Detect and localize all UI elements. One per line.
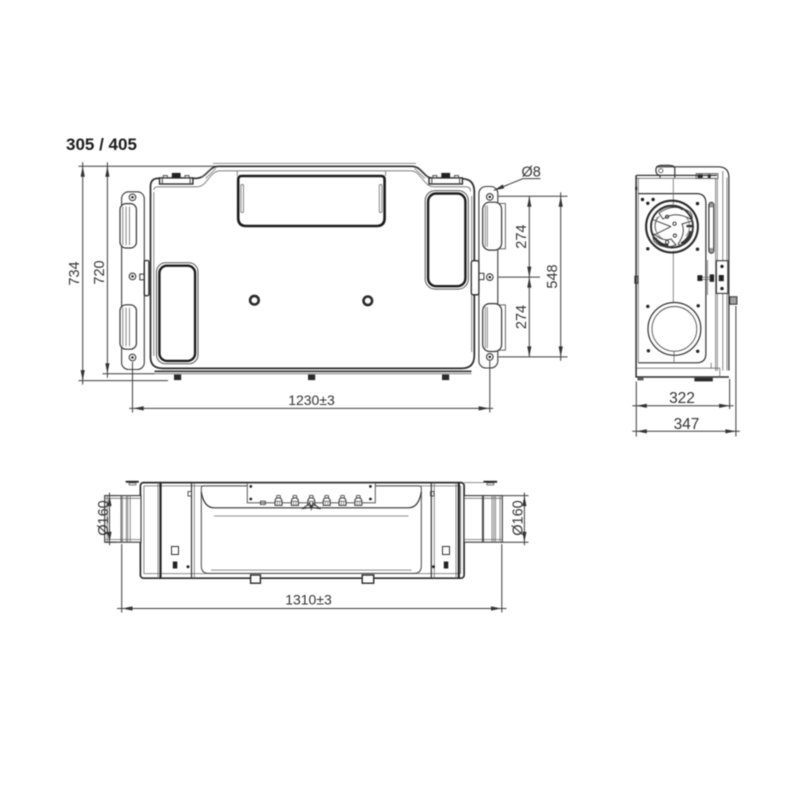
svg-text:Ø160: Ø160 xyxy=(96,500,112,535)
svg-text:548: 548 xyxy=(545,264,561,288)
svg-text:720: 720 xyxy=(92,260,108,284)
svg-text:347: 347 xyxy=(674,416,700,433)
svg-text:274: 274 xyxy=(514,224,530,248)
svg-text:1230±3: 1230±3 xyxy=(288,392,335,408)
svg-text:1310±3: 1310±3 xyxy=(285,592,332,608)
svg-text:305 / 405: 305 / 405 xyxy=(66,135,137,154)
svg-text:Ø8: Ø8 xyxy=(522,165,541,181)
svg-text:274: 274 xyxy=(514,305,530,329)
svg-text:322: 322 xyxy=(669,390,695,407)
svg-text:Ø160: Ø160 xyxy=(511,500,527,535)
svg-text:734: 734 xyxy=(67,261,83,285)
